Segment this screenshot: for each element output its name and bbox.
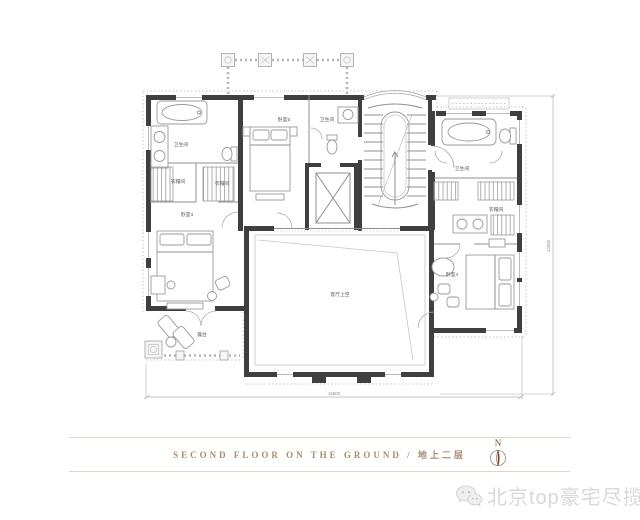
parapet-pillar: [341, 54, 354, 67]
room-label-bedroom-5: 卧室5: [278, 116, 291, 123]
room-label-bathroom-right: 卫生间: [455, 165, 470, 172]
page: 卫生间 衣帽间 衣帽间 卧室3 卧室5 卫生间 卫生间 衣帽间 卧室4 客厅上空…: [0, 0, 640, 520]
compass-rose-icon: [489, 449, 507, 467]
bathtub-left: [157, 101, 207, 124]
bed-bedroom-5: [243, 127, 297, 200]
dimension-label-right: 13300: [546, 239, 551, 252]
chairs-bedroom-4: [430, 258, 459, 307]
wardrobe-right-3: [491, 215, 514, 235]
dimension-label-bottom: 16600: [328, 391, 341, 396]
parapet-pillar: [259, 54, 272, 67]
watermark: 北京top豪宅尽揽: [455, 481, 640, 510]
vanity-right: [453, 215, 487, 233]
wardrobe-right-2: [478, 182, 514, 200]
bed-bedroom-3: [157, 231, 213, 309]
parapet-pillar: [304, 54, 317, 67]
room-label-closet-left-2: 衣帽间: [215, 180, 230, 187]
bathtub-right: [442, 119, 496, 145]
toilet-right: [500, 128, 517, 144]
staircase: [364, 104, 426, 208]
wechat-icon: [455, 483, 483, 509]
watermark-text: 北京top豪宅尽揽: [487, 481, 640, 510]
terrace-corner-pillar: [145, 341, 162, 358]
wardrobe-right-1: [434, 182, 458, 200]
roof-parapet: [222, 54, 510, 110]
floor-plan-drawing: 卫生间 衣帽间 衣帽间 卧室3 卧室5 卫生间 卫生间 衣帽间 卧室4 客厅上空…: [0, 0, 640, 520]
room-label-living-void: 客厅上空: [330, 291, 349, 298]
room-label-terrace: 露台: [197, 331, 207, 338]
divider-line-bottom: [69, 471, 570, 472]
compass-north-label: N: [486, 438, 510, 448]
toilet-left: [222, 147, 237, 161]
living-room-void-outline: [255, 235, 425, 365]
room-label-bathroom-center: 卫生间: [320, 116, 335, 123]
elevator: [316, 173, 350, 223]
compass: N: [486, 438, 510, 467]
room-label-closet-right: 衣帽间: [489, 206, 504, 213]
room-label-closet-left-1: 衣帽间: [171, 178, 186, 185]
room-label-bedroom-4: 卧室4: [446, 271, 459, 278]
dimension-bottom: 16600: [144, 336, 524, 399]
parapet-pillar: [222, 54, 235, 67]
terrace-area: [145, 314, 240, 360]
bathroom-center-fixtures: [327, 107, 358, 154]
terrace-loungers: [157, 314, 195, 349]
room-label-bathroom-left: 卫生间: [174, 141, 189, 148]
bed-bedroom-4: [466, 239, 514, 309]
room-label-bedroom-3: 卧室3: [181, 211, 194, 218]
double-sink-left: [151, 126, 168, 168]
wardrobe-left-1: [151, 167, 173, 201]
